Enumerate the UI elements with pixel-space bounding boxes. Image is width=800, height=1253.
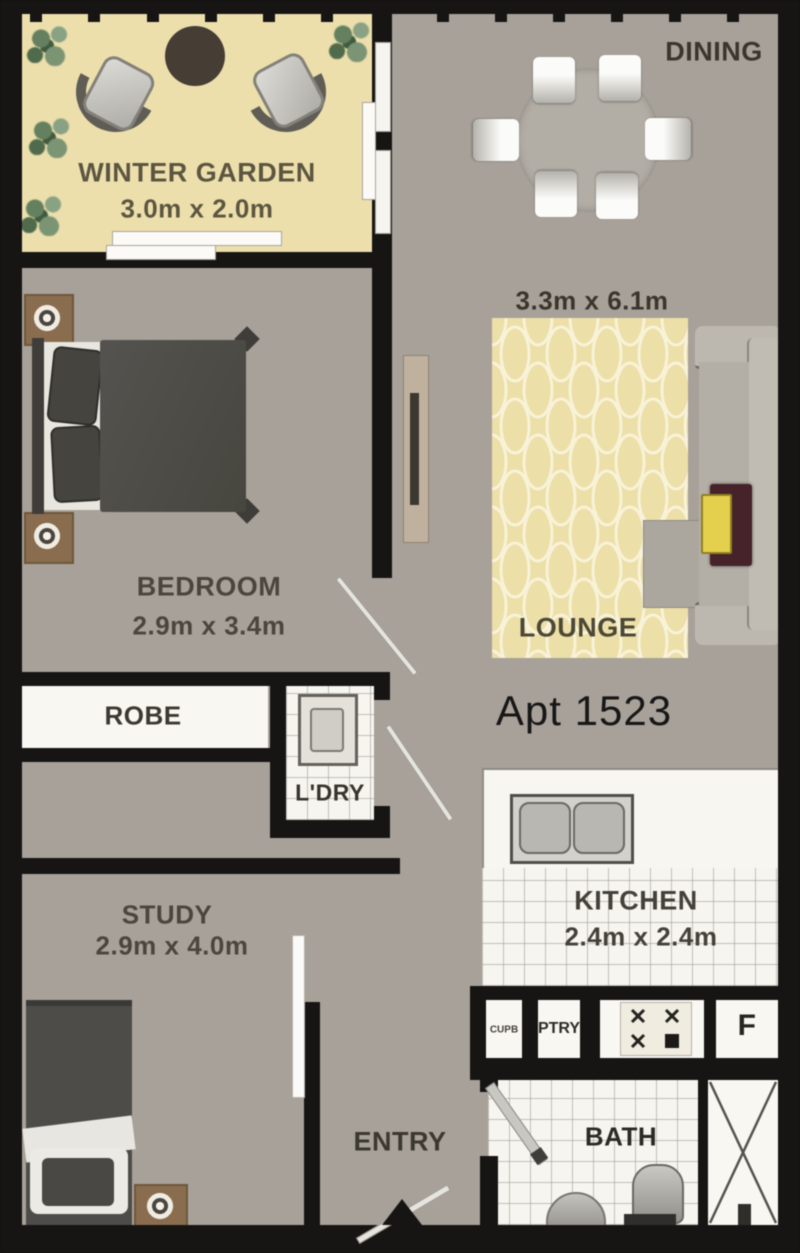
single-bed-pillow xyxy=(42,1158,114,1206)
wall-laundry-left xyxy=(270,672,286,836)
wall-laundry-right-top xyxy=(374,672,390,700)
balustrade-tick xyxy=(495,14,507,22)
sink-bowl xyxy=(573,802,625,854)
wall-laundry-bottom xyxy=(270,820,390,838)
window-pane xyxy=(362,102,376,200)
balustrade-tick xyxy=(553,14,565,22)
wall-outer-bottom xyxy=(0,1225,800,1253)
balustrade-tick xyxy=(611,14,623,22)
bath-label: BATH xyxy=(585,1122,657,1153)
balustrade-tick xyxy=(30,14,42,22)
balustrade-tick xyxy=(205,14,217,22)
lamp-icon xyxy=(32,303,62,333)
plan-canvas: WINTER GARDEN 3.0m x 2.0m DINING 3.3m x … xyxy=(0,0,800,1253)
lamp-icon xyxy=(143,1189,177,1223)
wall-robe-bottom xyxy=(22,748,270,762)
bedroom-dims: 2.9m x 3.4m xyxy=(133,611,286,642)
floor-plan: WINTER GARDEN 3.0m x 2.0m DINING 3.3m x … xyxy=(0,0,800,1253)
balustrade-tick xyxy=(263,14,275,22)
balustrade-tick xyxy=(321,14,333,22)
wall-robe-top xyxy=(22,672,390,686)
robe-label: ROBE xyxy=(104,701,181,732)
wall-outer-left xyxy=(0,0,22,1253)
wall-study-entry xyxy=(304,1002,320,1225)
plant-icon xyxy=(20,194,70,246)
washing-machine-door xyxy=(310,708,344,752)
toilet-base xyxy=(624,1214,676,1225)
kitchen-sink-icon xyxy=(510,794,634,864)
dining-chair xyxy=(473,119,519,161)
winter-garden-table xyxy=(165,26,225,86)
winter-garden-dims: 3.0m x 2.0m xyxy=(121,194,274,225)
bed-headboard xyxy=(32,338,44,514)
sliding-window xyxy=(106,245,216,260)
wall-bath-left-bottom xyxy=(480,1156,498,1225)
balustrade-tick xyxy=(437,14,449,22)
pantry-label: PTRY xyxy=(538,1020,580,1038)
dining-label: DINING xyxy=(665,37,763,68)
dining-chair xyxy=(596,173,638,219)
tv-unit xyxy=(410,393,419,505)
wall-pantry-divider xyxy=(522,1000,538,1058)
dining-chair xyxy=(599,55,641,101)
dining-chair xyxy=(535,171,577,217)
kitchen-dims: 2.4m x 2.4m xyxy=(565,922,718,953)
wall-stove-divider xyxy=(580,1000,600,1058)
lounge-dims: 3.3m x 6.1m xyxy=(516,286,669,317)
entry-door-hinge xyxy=(382,1199,422,1225)
sink-bowl xyxy=(519,802,571,854)
window-pane xyxy=(375,150,391,234)
wall-outer-top xyxy=(0,0,800,14)
dining-chair xyxy=(645,118,691,160)
wall-study-top xyxy=(22,858,400,874)
bed-pillow xyxy=(50,425,104,504)
fridge-label: F xyxy=(738,1009,757,1043)
wall-bath-shower xyxy=(698,1080,708,1225)
balustrade-tick xyxy=(147,14,159,22)
plant-icon xyxy=(328,20,378,72)
shower-tap xyxy=(738,1204,751,1225)
stove-burners xyxy=(621,1003,691,1055)
study-dims: 2.9m x 4.0m xyxy=(96,931,249,962)
bed-blanket xyxy=(100,340,246,512)
bed-pillow xyxy=(46,346,104,427)
cupboard-label: CUPB xyxy=(490,1025,518,1036)
study-sliding-panel xyxy=(292,935,305,1098)
stove-icon xyxy=(620,1002,692,1056)
entry-label: ENTRY xyxy=(353,1127,446,1158)
lamp-icon xyxy=(32,521,62,551)
balustrade-tick xyxy=(727,14,739,22)
sofa-backrest xyxy=(747,338,782,630)
wall-kitchen-top xyxy=(470,986,778,1000)
balustrade-tick xyxy=(669,14,681,22)
wall-bedroom-hall xyxy=(372,268,392,578)
dining-chair xyxy=(533,57,575,103)
winter-garden-label: WINTER GARDEN xyxy=(78,158,316,189)
window-pane xyxy=(375,42,391,132)
laundry-label: L'DRY xyxy=(295,780,365,807)
plant-icon xyxy=(28,116,78,168)
kitchen-label: KITCHEN xyxy=(574,886,698,917)
yellow-cushion xyxy=(701,494,732,554)
sliding-window xyxy=(112,231,282,246)
sofa-ottoman xyxy=(643,520,707,608)
lounge-label: LOUNGE xyxy=(519,613,638,644)
wall-kitchen-bottom xyxy=(470,1058,800,1080)
balustrade-tick xyxy=(88,14,100,22)
study-label: STUDY xyxy=(122,900,213,931)
plant-icon xyxy=(26,24,76,76)
wall-fridge-divider xyxy=(704,1000,716,1058)
apartment-number-label: Apt 1523 xyxy=(496,687,672,735)
bedroom-label: BEDROOM xyxy=(137,572,282,603)
